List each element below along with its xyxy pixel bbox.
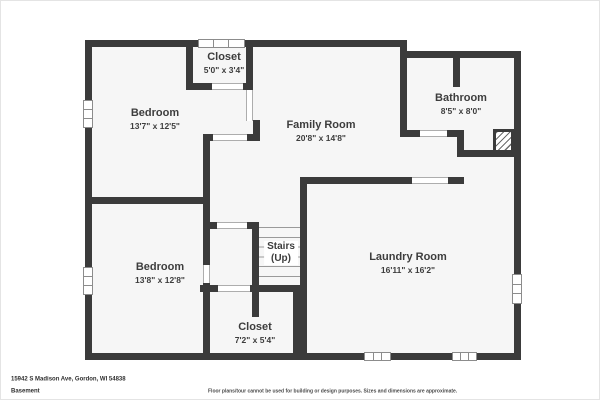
room-dims: (Up) bbox=[267, 253, 295, 265]
window-symbol bbox=[512, 274, 522, 304]
room-label-bedroom-lower: Bedroom 13'8" x 12'8" bbox=[135, 261, 185, 285]
room-dims: 13'7" x 12'5" bbox=[130, 121, 180, 131]
wall bbox=[300, 177, 412, 184]
window-symbol bbox=[83, 267, 93, 295]
room-name: Stairs bbox=[267, 241, 295, 253]
door-opening bbox=[212, 83, 243, 90]
wall bbox=[400, 51, 521, 58]
door-opening bbox=[217, 222, 247, 229]
door-opening bbox=[218, 285, 250, 292]
room-label-family-room: Family Room 20'8" x 14'8" bbox=[286, 119, 355, 143]
wall bbox=[210, 222, 217, 229]
room-label-closet-lower: Closet 7'2" x 5'4" bbox=[235, 321, 275, 345]
wall bbox=[246, 40, 253, 90]
property-address: 15942 S Madison Ave, Gordon, WI 54838 bbox=[11, 375, 126, 382]
wall bbox=[400, 130, 420, 137]
wall bbox=[85, 197, 210, 204]
room-label-bathroom: Bathroom 8'5" x 8'0" bbox=[435, 92, 487, 116]
floor-level-label: Basement bbox=[11, 387, 40, 394]
room-name: Laundry Room bbox=[369, 251, 447, 264]
room-name: Family Room bbox=[286, 119, 355, 132]
chimney-hatch bbox=[493, 129, 514, 153]
door-opening bbox=[420, 130, 447, 137]
wall bbox=[293, 285, 300, 353]
room-dims: 5'0" x 3'4" bbox=[204, 65, 244, 75]
room-dims: 16'11" x 16'2" bbox=[369, 265, 447, 275]
wall bbox=[203, 283, 210, 360]
door-opening bbox=[213, 134, 247, 141]
room-dims: 8'5" x 8'0" bbox=[435, 106, 487, 116]
window-symbol bbox=[198, 39, 245, 48]
wall bbox=[448, 177, 464, 184]
wall bbox=[453, 58, 460, 87]
room-name: Closet bbox=[235, 321, 275, 334]
room-name: Bathroom bbox=[435, 92, 487, 105]
wall bbox=[300, 177, 307, 360]
room-label-stairs: Stairs (Up) bbox=[264, 241, 298, 265]
window-symbol bbox=[452, 352, 477, 361]
room-dims: 20'8" x 14'8" bbox=[286, 133, 355, 143]
window-symbol bbox=[364, 352, 391, 361]
room-label-bedroom-upper: Bedroom 13'7" x 12'5" bbox=[130, 107, 180, 131]
room-name: Bedroom bbox=[130, 107, 180, 120]
door-opening bbox=[412, 177, 448, 184]
room-name: Closet bbox=[204, 51, 244, 64]
disclaimer-text: Floor plans/tour cannot be used for buil… bbox=[208, 388, 457, 394]
wall bbox=[252, 222, 259, 317]
room-name: Bedroom bbox=[135, 261, 185, 274]
room-label-laundry-room: Laundry Room 16'11" x 16'2" bbox=[369, 251, 447, 275]
wall bbox=[247, 134, 260, 141]
wall bbox=[514, 51, 521, 360]
room-dims: 7'2" x 5'4" bbox=[235, 335, 275, 345]
door-opening bbox=[246, 90, 253, 121]
window-symbol bbox=[83, 100, 93, 128]
wall bbox=[200, 285, 218, 292]
wall bbox=[186, 83, 212, 90]
door-opening bbox=[203, 265, 210, 283]
wall bbox=[400, 51, 407, 137]
room-label-closet-upper: Closet 5'0" x 3'4" bbox=[204, 51, 244, 75]
room-dims: 13'8" x 12'8" bbox=[135, 275, 185, 285]
